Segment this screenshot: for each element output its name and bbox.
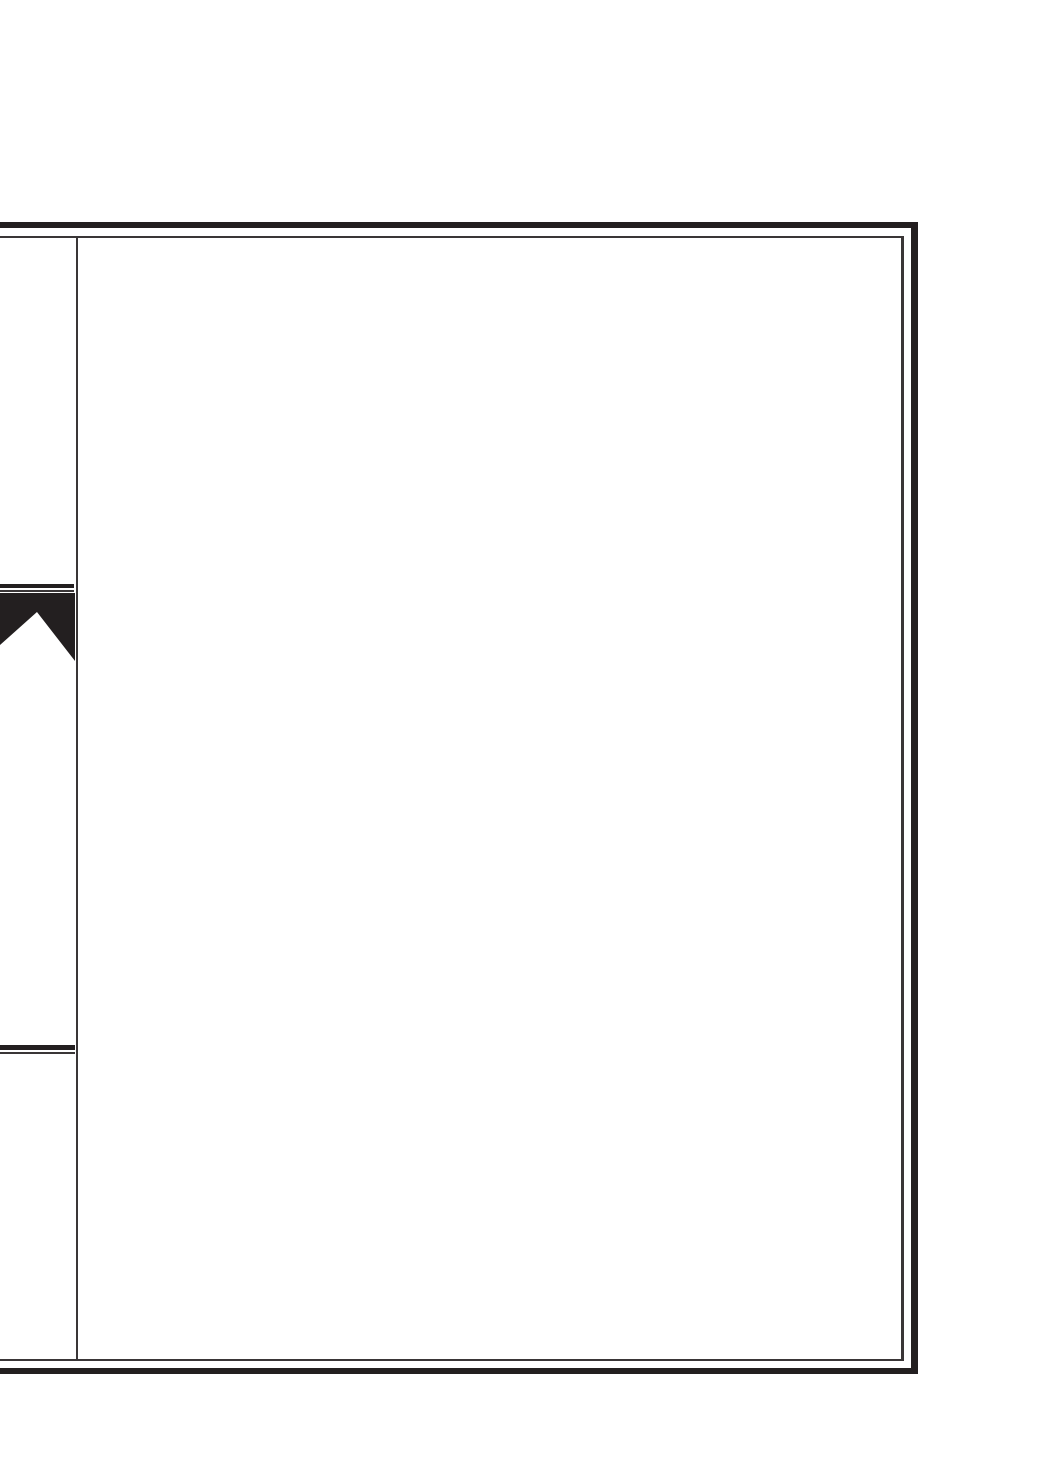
bookmark-rule-thin	[0, 590, 74, 592]
margin-rule-thick	[0, 1045, 75, 1050]
outer-frame-bottom-border	[0, 1368, 918, 1374]
inner-frame-right-border	[901, 236, 904, 1361]
inner-frame-top-border	[0, 236, 903, 238]
bookmark-rule-thick	[0, 584, 74, 588]
outer-frame-top-border	[0, 222, 918, 228]
scanned-page	[0, 0, 1040, 1471]
outer-frame-right-border	[911, 222, 918, 1374]
margin-rule-thin	[0, 1052, 75, 1054]
inner-frame-bottom-border	[0, 1359, 903, 1361]
bookmark-tab-icon	[0, 593, 75, 661]
margin-divider-line	[76, 236, 79, 1361]
